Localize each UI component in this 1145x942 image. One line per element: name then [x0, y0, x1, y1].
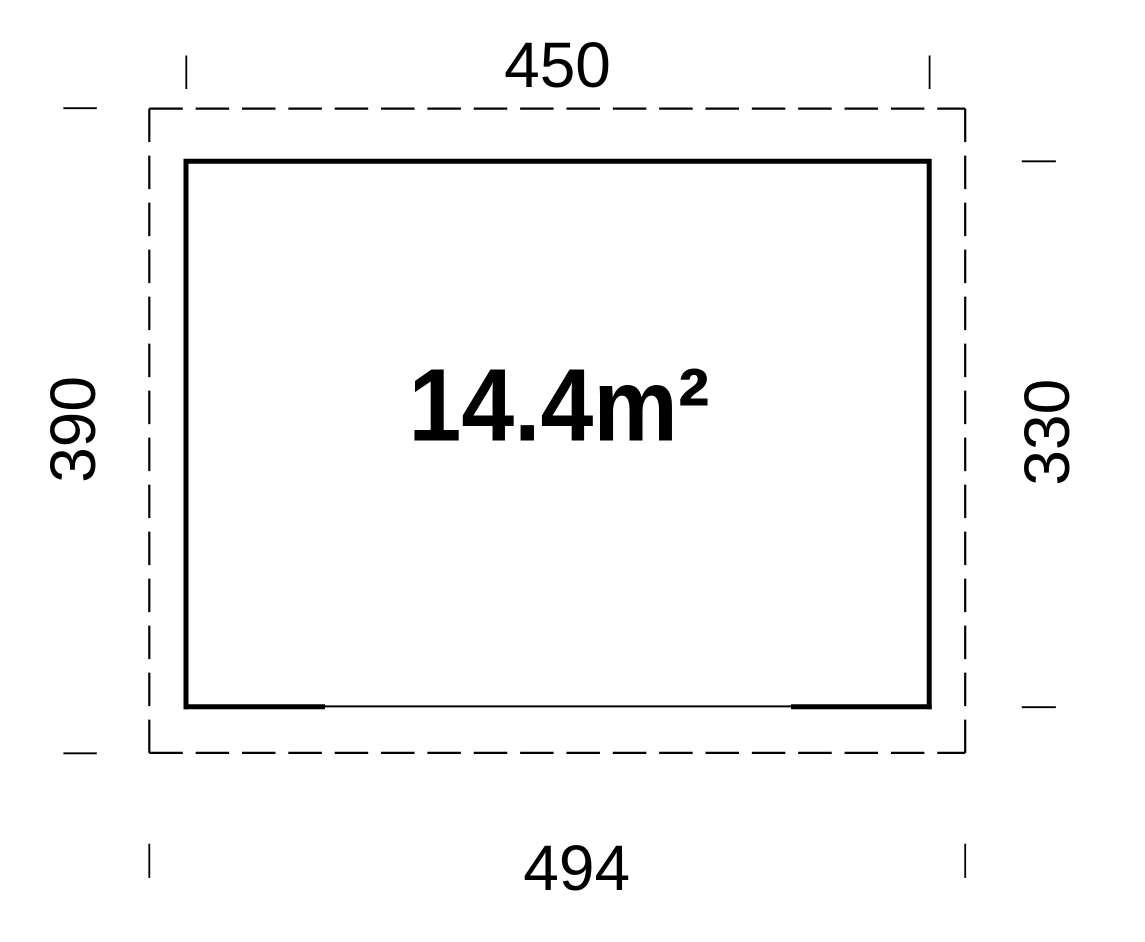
svg-text:330: 330 — [1011, 379, 1083, 486]
svg-text:494: 494 — [523, 832, 630, 904]
svg-text:14.4m²: 14.4m² — [409, 348, 710, 463]
svg-text:450: 450 — [504, 29, 611, 101]
svg-text:390: 390 — [37, 376, 109, 483]
